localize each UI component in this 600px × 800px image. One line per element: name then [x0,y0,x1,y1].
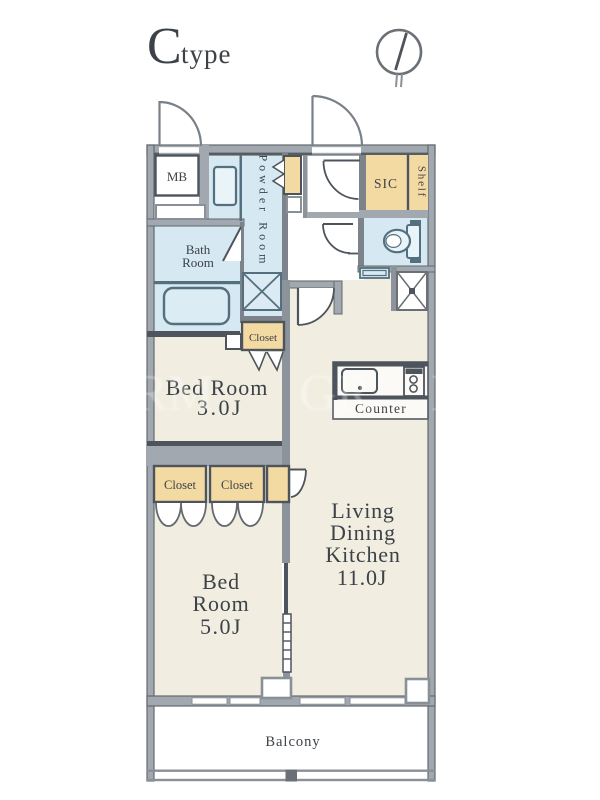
svg-text:RM: RM [133,365,214,422]
svg-text:MB: MB [167,169,188,184]
svg-text:Room: Room [193,591,250,616]
svg-text:Closet: Closet [249,332,277,344]
svg-text:Room: Room [182,255,214,270]
svg-text:Balcony: Balcony [265,734,320,750]
svg-text:SIC: SIC [374,176,398,191]
svg-text:C: C [147,18,182,75]
svg-text:Closet: Closet [164,478,196,492]
svg-text:E: E [431,365,463,422]
svg-text:Powder Room: Powder Room [257,155,271,268]
svg-text:GR: GR [299,365,372,422]
svg-text:Kitchen: Kitchen [325,542,400,567]
svg-text:Shelf: Shelf [416,166,428,198]
svg-text:5.0J: 5.0J [200,614,242,639]
svg-text:Closet: Closet [221,478,253,492]
svg-text:type: type [181,39,232,69]
svg-text:11.0J: 11.0J [337,565,387,590]
